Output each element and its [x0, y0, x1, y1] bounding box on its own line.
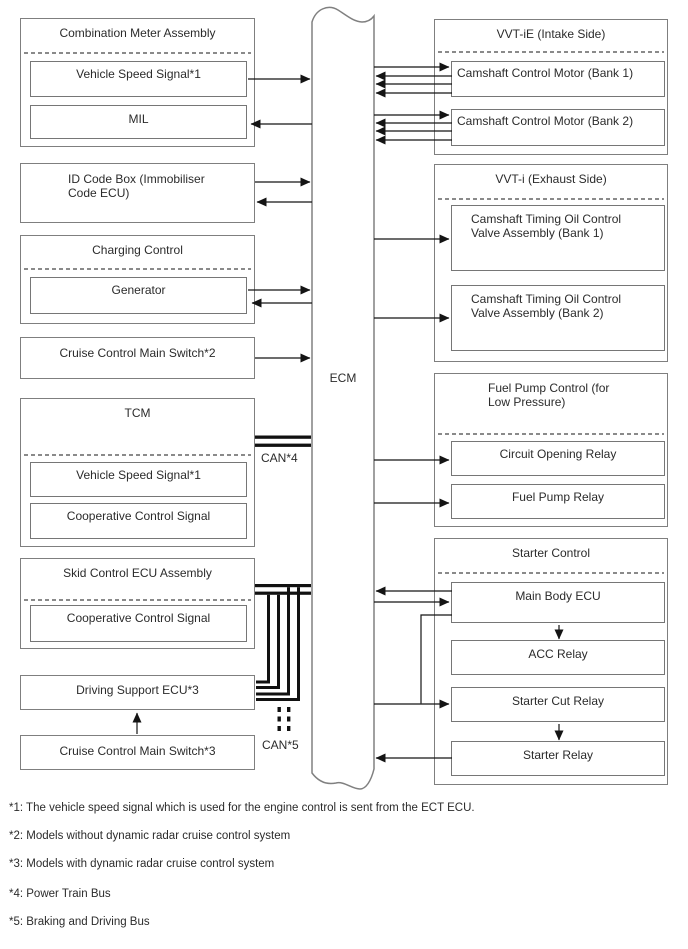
fuel-pump-control-box: Fuel Pump Control (for Low Pressure) Cir… — [434, 373, 668, 527]
vvt-i-exhaust-box: VVT-i (Exhaust Side) Camshaft Timing Oil… — [434, 164, 668, 362]
box-title: Fuel Pump Control (for Low Pressure) — [435, 374, 628, 409]
camshaft-control-motor-bank1-box: Camshaft Control Motor (Bank 1) — [451, 61, 665, 97]
footnote-5: *5: Braking and Driving Bus — [9, 916, 150, 929]
dashed-divider — [438, 51, 664, 53]
can4-label: CAN*4 — [261, 451, 298, 465]
charging-control-box: Charging Control Generator — [20, 235, 255, 324]
vehicle-speed-signal-box: Vehicle Speed Signal*1 — [30, 61, 247, 97]
main-body-ecu-box: Main Body ECU — [451, 582, 665, 623]
acc-relay-box: ACC Relay — [451, 640, 665, 675]
box-title: Driving Support ECU*3 — [21, 676, 254, 697]
tcm-box: TCM Vehicle Speed Signal*1 Cooperative C… — [20, 398, 255, 547]
dashed-divider — [438, 198, 664, 200]
dashed-divider — [438, 433, 664, 435]
fuel-pump-relay-box: Fuel Pump Relay — [451, 484, 665, 519]
circuit-opening-relay-box: Circuit Opening Relay — [451, 441, 665, 476]
camshaft-control-motor-bank2-box: Camshaft Control Motor (Bank 2) — [451, 109, 665, 146]
box-title: Cruise Control Main Switch*3 — [21, 736, 254, 758]
combination-meter-assembly-box: Combination Meter Assembly Vehicle Speed… — [20, 18, 255, 147]
dashed-divider — [24, 599, 251, 601]
cruise-control-main-switch2-box: Cruise Control Main Switch*2 — [20, 337, 255, 379]
id-code-box: ID Code Box (Immobiliser Code ECU) — [20, 163, 255, 223]
box-title: ID Code Box (Immobiliser Code ECU) — [21, 164, 233, 200]
ecm-bar — [312, 7, 374, 789]
box-title: Starter Control — [435, 539, 667, 560]
driving-support-ecu-box: Driving Support ECU*3 — [20, 675, 255, 710]
box-title: VVT-iE (Intake Side) — [435, 20, 667, 41]
dashed-divider — [24, 52, 251, 54]
dashed-divider — [438, 572, 664, 574]
box-title: VVT-i (Exhaust Side) — [435, 165, 667, 186]
system-diagram: Combination Meter Assembly Vehicle Speed… — [0, 0, 688, 949]
footnote-4: *4: Power Train Bus — [9, 888, 111, 901]
mil-box: MIL — [30, 105, 247, 139]
starter-control-box: Starter Control Main Body ECU ACC Relay … — [434, 538, 668, 785]
box-title: Cruise Control Main Switch*2 — [21, 338, 254, 360]
vehicle-speed-signal-box: Vehicle Speed Signal*1 — [30, 462, 247, 497]
box-title: Skid Control ECU Assembly — [21, 559, 254, 580]
cooperative-control-signal-box: Cooperative Control Signal — [30, 605, 247, 642]
footnote-1: *1: The vehicle speed signal which is us… — [9, 802, 475, 815]
dashed-divider — [24, 454, 251, 456]
dashed-divider — [24, 268, 251, 270]
cooperative-control-signal-box: Cooperative Control Signal — [30, 503, 247, 539]
box-title: Combination Meter Assembly — [21, 19, 254, 40]
cruise-control-main-switch3-box: Cruise Control Main Switch*3 — [20, 735, 255, 770]
can5-label: CAN*5 — [262, 738, 299, 752]
box-title: Charging Control — [21, 236, 254, 257]
camshaft-oil-valve-bank1-box: Camshaft Timing Oil Control Valve Assemb… — [471, 212, 639, 240]
footnote-2: *2: Models without dynamic radar cruise … — [9, 830, 290, 843]
camshaft-oil-valve-bank2-box: Camshaft Timing Oil Control Valve Assemb… — [471, 292, 639, 320]
starter-cut-relay-box: Starter Cut Relay — [451, 687, 665, 722]
ecm-label: ECM — [312, 371, 374, 385]
generator-box: Generator — [30, 277, 247, 314]
vvt-ie-intake-box: VVT-iE (Intake Side) Camshaft Control Mo… — [434, 19, 668, 155]
footnote-3: *3: Models with dynamic radar cruise con… — [9, 858, 274, 871]
box-title: TCM — [21, 399, 254, 420]
starter-relay-box: Starter Relay — [451, 741, 665, 776]
skid-control-ecu-box: Skid Control ECU Assembly Cooperative Co… — [20, 558, 255, 649]
